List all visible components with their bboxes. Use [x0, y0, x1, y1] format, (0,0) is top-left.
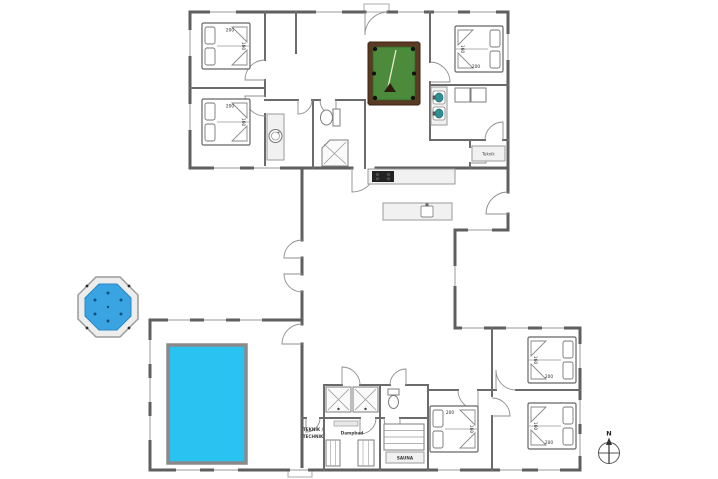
- bed-length-label: 200: [446, 410, 454, 416]
- bed-width-label: 160: [468, 425, 474, 433]
- bedroom-lower-right-top: 200 160: [528, 337, 576, 383]
- steam-bath-bench: [358, 440, 374, 466]
- swimming-pool: [168, 345, 246, 463]
- sink-basin: [435, 93, 443, 102]
- bedroom-upper-left-1: 200 160: [202, 23, 250, 69]
- teknik-room-label: Teknik: [481, 152, 495, 157]
- bed-length-label: 200: [472, 64, 480, 70]
- washing-machine: [267, 114, 284, 160]
- kitchen-counter: [368, 169, 455, 184]
- teknik-label-line1: TEKNIK /: [303, 427, 324, 432]
- steam-bath-label: Dampbad: [341, 431, 363, 436]
- bed-width-label: 160: [532, 356, 538, 364]
- island-sink: [421, 206, 433, 217]
- north-label: N: [606, 430, 611, 438]
- bedroom-lower-right-bottom: 200 160: [528, 403, 576, 449]
- bed-length-label: 200: [545, 440, 553, 446]
- bath-bench: [455, 88, 470, 102]
- bath-bench: [471, 88, 486, 102]
- billiard-table: [367, 41, 421, 106]
- toilet-upper: [321, 109, 341, 126]
- steam-bath-bench: [326, 440, 340, 466]
- bed-length-label: 200: [545, 374, 553, 380]
- kitchen-island: [383, 203, 452, 220]
- floor-plan-drawing: 200 160 200 160 200 160 200 160 200 160 …: [0, 0, 718, 479]
- bed-width-label: 160: [240, 118, 246, 126]
- hot-tub: [78, 277, 138, 337]
- entrance-step-top: [364, 4, 389, 12]
- floor-plan-page: 200 160 200 160 200 160 200 160 200 160 …: [0, 0, 718, 479]
- bed-width-label: 160: [532, 422, 538, 430]
- bedroom-upper-right: 200 160: [455, 26, 503, 72]
- corner-shower: [322, 140, 348, 166]
- teknik-label-line2: TECHNIK: [303, 434, 324, 439]
- sink-basin: [435, 109, 443, 118]
- bed-width-label: 160: [240, 42, 246, 50]
- toilet-lower: [388, 389, 399, 409]
- sauna-label: SAUNA: [397, 456, 414, 461]
- teknik-room-upper: Teknik: [472, 146, 505, 161]
- cooktop: [372, 171, 394, 182]
- sauna-room: SAUNA: [384, 424, 424, 463]
- bedroom-upper-left-2: 200 160: [202, 99, 250, 145]
- bed-length-label: 200: [226, 104, 234, 110]
- bed-width-label: 160: [459, 45, 465, 53]
- bed-length-label: 200: [226, 28, 234, 34]
- bedroom-lower-middle: 200 160: [430, 406, 478, 452]
